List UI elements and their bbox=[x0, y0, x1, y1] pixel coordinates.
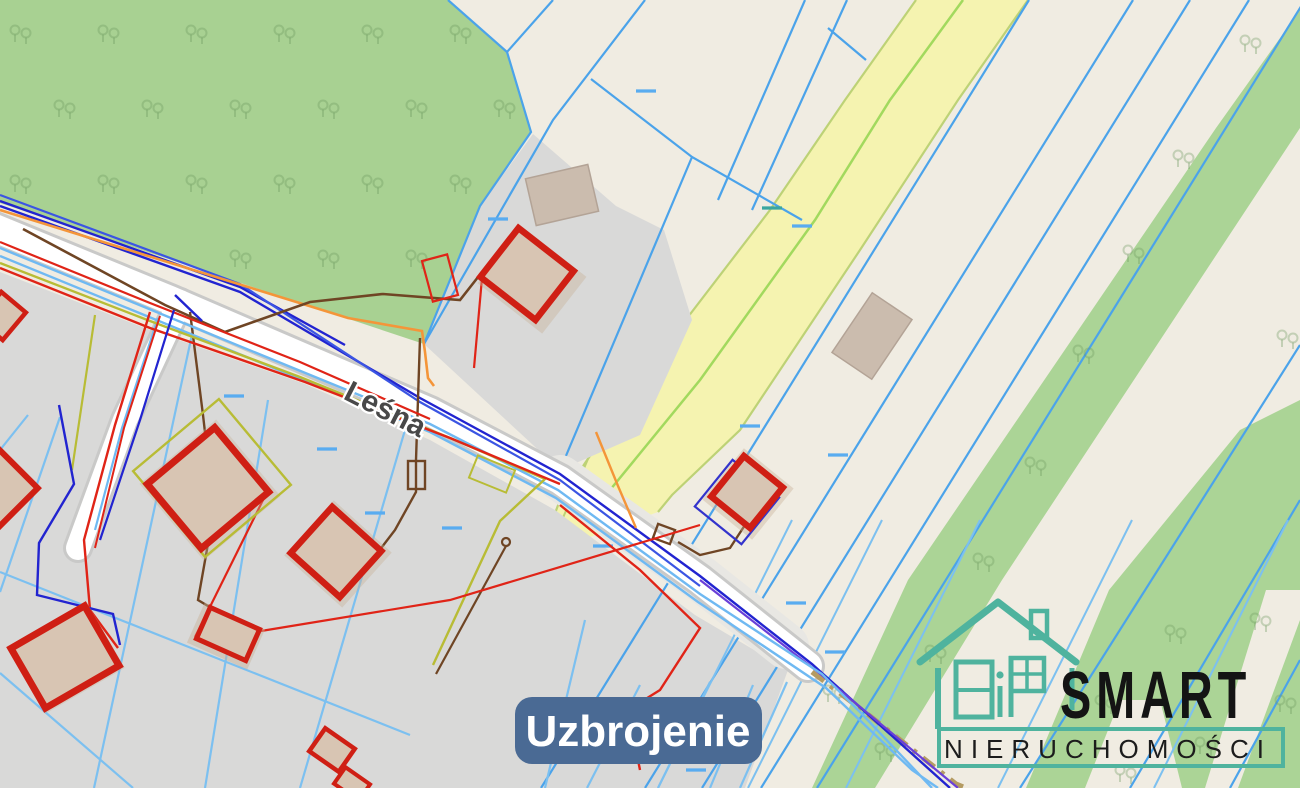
svg-text:Uzbrojenie: Uzbrojenie bbox=[526, 707, 751, 756]
svg-text:NIERUCHOMOŚCI: NIERUCHOMOŚCI bbox=[944, 734, 1272, 764]
svg-text:SMART: SMART bbox=[1060, 659, 1251, 733]
